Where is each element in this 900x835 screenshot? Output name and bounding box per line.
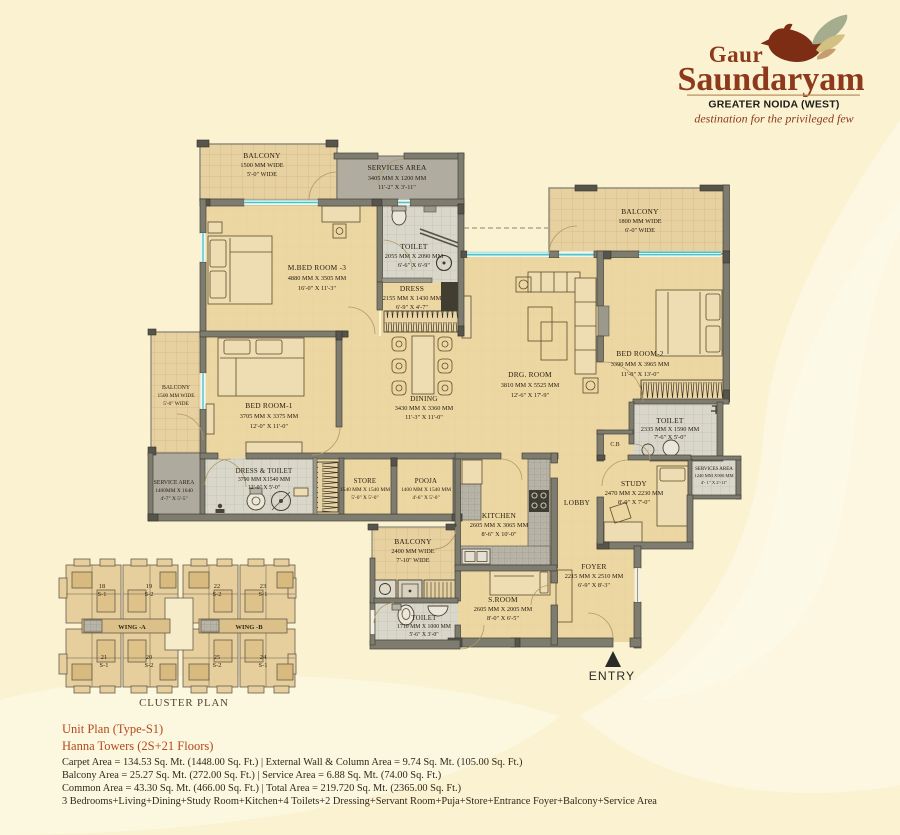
svg-text:STUDY: STUDY <box>621 479 647 488</box>
svg-text:20: 20 <box>146 654 152 661</box>
svg-text:1500 MM WIDE: 1500 MM WIDE <box>157 393 195 399</box>
svg-text:7'-6" X 5'-0": 7'-6" X 5'-0" <box>654 434 686 441</box>
svg-text:6'-9" X 8'-3": 6'-9" X 8'-3" <box>578 582 610 589</box>
svg-text:S-1: S-1 <box>259 591 268 598</box>
svg-text:BALCONY: BALCONY <box>621 207 659 216</box>
svg-text:5'-6" X 3'-0": 5'-6" X 3'-0" <box>409 632 438 638</box>
svg-text:Common Area = 43.30 Sq. Mt. (4: Common Area = 43.30 Sq. Mt. (466.00 Sq. … <box>62 783 461 794</box>
svg-text:21: 21 <box>101 654 107 661</box>
svg-text:SERVICES AREA: SERVICES AREA <box>367 163 427 172</box>
svg-text:8'-6" X 10'-0": 8'-6" X 10'-0" <box>481 531 516 538</box>
svg-text:6'-9" X 4'-7": 6'-9" X 4'-7" <box>396 304 428 311</box>
svg-text:S.ROOM: S.ROOM <box>488 595 518 604</box>
svg-text:S-2: S-2 <box>213 662 222 669</box>
svg-text:18: 18 <box>99 583 105 590</box>
svg-text:WING -A: WING -A <box>118 624 146 631</box>
svg-text:FOYER: FOYER <box>581 562 606 571</box>
svg-text:S-1: S-1 <box>259 662 268 669</box>
svg-text:5'-0" WIDE: 5'-0" WIDE <box>163 401 189 407</box>
svg-text:3790 MM X1540 MM: 3790 MM X1540 MM <box>238 477 290 483</box>
svg-text:3430 MM X 3360 MM: 3430 MM X 3360 MM <box>395 405 454 412</box>
svg-text:11'-0" X 13'-0": 11'-0" X 13'-0" <box>621 371 659 378</box>
svg-text:GREATER NOIDA (WEST): GREATER NOIDA (WEST) <box>708 99 839 111</box>
svg-text:C.B: C.B <box>610 442 619 448</box>
svg-text:2605 MM X 2005 MM: 2605 MM X 2005 MM <box>474 606 533 613</box>
svg-text:3390 MM X 3965 MM: 3390 MM X 3965 MM <box>611 361 670 368</box>
svg-text:TOILET: TOILET <box>656 416 683 425</box>
svg-text:POOJA: POOJA <box>415 478 437 485</box>
svg-text:S-1: S-1 <box>98 591 107 598</box>
svg-text:6'-0" WIDE: 6'-0" WIDE <box>625 227 655 234</box>
svg-text:DRESS & TOILET: DRESS & TOILET <box>236 468 293 475</box>
svg-text:Unit Plan (Type-S1): Unit Plan (Type-S1) <box>62 722 163 736</box>
svg-text:TOILET: TOILET <box>411 615 437 622</box>
svg-text:2470 MM X 2230 MM: 2470 MM X 2230 MM <box>605 490 664 497</box>
svg-text:22: 22 <box>214 583 220 590</box>
svg-text:11'-3" X 11'-0": 11'-3" X 11'-0" <box>405 414 443 421</box>
svg-text:DRESS: DRESS <box>400 284 424 293</box>
svg-text:12'-0" X 5'-0": 12'-0" X 5'-0" <box>248 485 280 491</box>
svg-text:1400 MM X 1540 MM: 1400 MM X 1540 MM <box>401 487 451 493</box>
svg-text:Saundaryam: Saundaryam <box>677 61 864 98</box>
svg-text:3705 MM X 3375 MM: 3705 MM X 3375 MM <box>240 413 299 420</box>
svg-text:3405 MM X 1200 MM: 3405 MM X 1200 MM <box>368 175 427 182</box>
svg-text:4'-7" X 5'-5": 4'-7" X 5'-5" <box>160 496 187 502</box>
svg-text:destination for the privileged: destination for the privileged few <box>694 112 853 126</box>
svg-text:19: 19 <box>146 583 152 590</box>
svg-text:3810 MM X 5525 MM: 3810 MM X 5525 MM <box>501 382 560 389</box>
svg-text:1500 MM WIDE: 1500 MM WIDE <box>240 162 283 169</box>
svg-text:3 Bedrooms+Living+Dining+Study: 3 Bedrooms+Living+Dining+Study Room+Kitc… <box>62 796 657 807</box>
svg-text:SERVICES AREA: SERVICES AREA <box>695 467 733 472</box>
svg-text:5'-0" X 5'-0": 5'-0" X 5'-0" <box>351 495 378 501</box>
svg-text:ENTRY: ENTRY <box>589 669 636 683</box>
svg-text:2335 MM X 1590 MM: 2335 MM X 1590 MM <box>641 426 700 433</box>
svg-text:23: 23 <box>260 583 266 590</box>
svg-text:12'-0" X 11'-0": 12'-0" X 11'-0" <box>250 423 288 430</box>
svg-text:S-1: S-1 <box>100 662 109 669</box>
svg-text:1710 MM X 1000 MM: 1710 MM X 1000 MM <box>397 624 451 630</box>
svg-text:SERVICE AREA: SERVICE AREA <box>154 480 195 486</box>
svg-text:8'-0" X 6'-5": 8'-0" X 6'-5" <box>487 615 519 622</box>
svg-text:KITCHEN: KITCHEN <box>482 511 517 520</box>
svg-text:2605 MM X 3065 MM: 2605 MM X 3065 MM <box>470 522 529 529</box>
svg-text:2155 MM X 1430 MM: 2155 MM X 1430 MM <box>383 295 442 302</box>
svg-text:25: 25 <box>214 654 220 661</box>
svg-text:2055 MM X 2090 MM: 2055 MM X 2090 MM <box>385 253 444 260</box>
svg-text:4'- 1" X 2'-11": 4'- 1" X 2'-11" <box>701 480 728 485</box>
svg-text:16'-0" X 11'-3": 16'-0" X 11'-3" <box>298 285 336 292</box>
svg-text:12'-6" X 17'-9": 12'-6" X 17'-9" <box>511 392 550 399</box>
svg-text:DRG. ROOM: DRG. ROOM <box>508 370 552 379</box>
svg-text:2400 MM WIDE: 2400 MM WIDE <box>391 548 434 555</box>
svg-text:5'-0" WIDE: 5'-0" WIDE <box>247 171 277 178</box>
svg-text:4880 MM X 3505 MM: 4880 MM X 3505 MM <box>288 275 347 282</box>
svg-text:WING -B: WING -B <box>235 624 263 631</box>
svg-text:S-2: S-2 <box>213 591 222 598</box>
svg-text:24: 24 <box>260 654 267 661</box>
svg-text:STORE: STORE <box>354 478 377 485</box>
svg-text:BALCONY: BALCONY <box>162 385 191 391</box>
svg-text:S-2: S-2 <box>145 591 154 598</box>
svg-text:DINING: DINING <box>410 394 438 403</box>
svg-text:2215 MM X 2510 MM: 2215 MM X 2510 MM <box>565 573 624 580</box>
svg-text:4'-6" X 5'-0": 4'-6" X 5'-0" <box>412 495 439 501</box>
svg-text:BALCONY: BALCONY <box>243 151 281 160</box>
svg-text:8'-0" X 7'-0": 8'-0" X 7'-0" <box>618 499 650 506</box>
svg-text:M.BED ROOM -3: M.BED ROOM -3 <box>288 263 347 272</box>
svg-text:Balcony Area = 25.27 Sq. Mt. (: Balcony Area = 25.27 Sq. Mt. (272.00 Sq.… <box>62 770 441 781</box>
svg-text:7'-10" WIDE: 7'-10" WIDE <box>396 557 429 564</box>
svg-text:1400MM X 1640: 1400MM X 1640 <box>155 488 193 494</box>
svg-text:TOILET: TOILET <box>400 242 427 251</box>
svg-text:CLUSTER PLAN: CLUSTER PLAN <box>139 697 229 709</box>
svg-text:1800 MM WIDE: 1800 MM WIDE <box>618 218 661 225</box>
svg-text:Hanna Towers (2S+21 Floors): Hanna Towers (2S+21 Floors) <box>62 739 213 753</box>
svg-text:LOBBY: LOBBY <box>564 498 591 507</box>
svg-text:Carpet Area = 134.53 Sq. Mt. (: Carpet Area = 134.53 Sq. Mt. (1448.00 Sq… <box>62 757 522 768</box>
svg-text:11'-2" X 3'-11": 11'-2" X 3'-11" <box>378 184 416 191</box>
svg-text:6'-6" X 6'-9": 6'-6" X 6'-9" <box>398 262 430 269</box>
svg-text:BED ROOM-2: BED ROOM-2 <box>616 349 664 358</box>
svg-text:S-2: S-2 <box>145 662 154 669</box>
svg-text:BED ROOM-1: BED ROOM-1 <box>245 401 293 410</box>
svg-text:BALCONY: BALCONY <box>394 537 432 546</box>
svg-text:1240 MM X900 MM: 1240 MM X900 MM <box>694 473 733 478</box>
svg-text:1540 MM X 1540 MM: 1540 MM X 1540 MM <box>340 487 390 493</box>
